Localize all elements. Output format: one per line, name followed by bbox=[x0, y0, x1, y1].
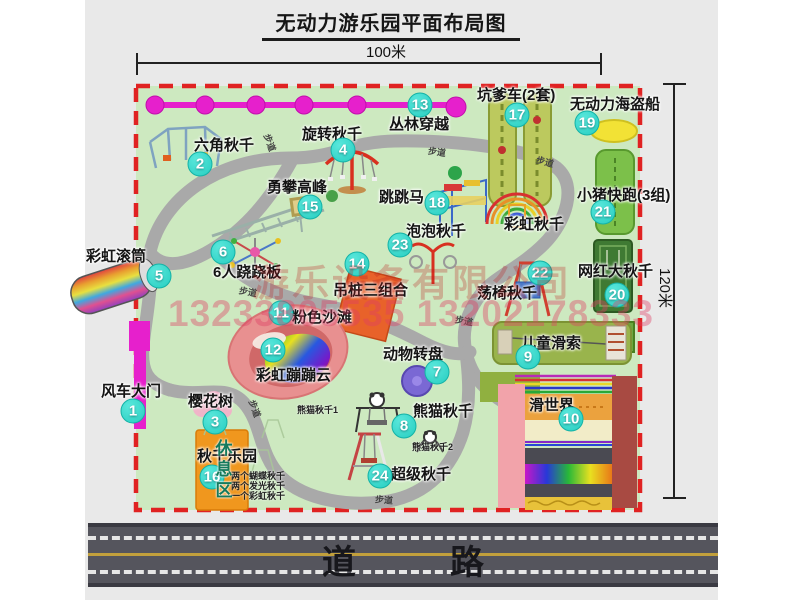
rest-area-label: 休息区 bbox=[196, 431, 248, 509]
attraction-label-20: 网红大秋千 bbox=[578, 260, 653, 281]
attraction-label-23: 泡泡秋千 bbox=[406, 220, 466, 241]
path-label: 步道 bbox=[454, 313, 474, 329]
attraction-number-1: 1 bbox=[121, 399, 146, 424]
attraction-number-7: 7 bbox=[425, 360, 450, 385]
path-label: 步道 bbox=[535, 153, 556, 170]
attraction-label-4: 旋转秋千 bbox=[302, 123, 362, 144]
attraction-number-15: 15 bbox=[298, 195, 323, 220]
attraction-number-10: 10 bbox=[559, 407, 584, 432]
attraction-number-14: 14 bbox=[345, 252, 370, 277]
path-label: 步道 bbox=[246, 398, 264, 419]
attraction-number-19: 19 bbox=[575, 111, 600, 136]
attraction-number-8: 8 bbox=[392, 414, 417, 439]
attraction-number-13: 13 bbox=[408, 93, 433, 118]
attraction-number-2: 2 bbox=[188, 152, 213, 177]
attraction-label: 彩虹秋千 bbox=[504, 213, 564, 234]
attraction-label-21: 小猪快跑(3组) bbox=[577, 184, 670, 205]
attraction-number-24: 24 bbox=[368, 464, 393, 489]
attraction-number-20: 20 bbox=[605, 283, 630, 308]
attraction-number-21: 21 bbox=[591, 200, 616, 225]
attraction-number-12: 12 bbox=[261, 338, 286, 363]
attraction-label-3: 樱花树 bbox=[188, 390, 233, 411]
attraction-number-17: 17 bbox=[505, 103, 530, 128]
attraction-label-8: 熊猫秋千 bbox=[413, 400, 473, 421]
attraction-number-22: 22 bbox=[528, 261, 553, 286]
attraction-label-12: 彩虹蹦蹦云 bbox=[256, 364, 331, 385]
sub-label: 熊猫秋千2 bbox=[412, 440, 453, 453]
attraction-label-11: 粉色沙滩 bbox=[292, 306, 352, 327]
path-label: 步道 bbox=[261, 132, 279, 153]
labels-overlay: 风车大门1六角秋千2樱花树3旋转秋千4彩虹滚筒56人跷跷板6动物转盘7熊猫秋千8… bbox=[0, 0, 800, 600]
attraction-number-23: 23 bbox=[388, 233, 413, 258]
attraction-number-18: 18 bbox=[425, 191, 450, 216]
attraction-label-18: 跳跳马 bbox=[379, 186, 424, 207]
attraction-number-5: 5 bbox=[147, 264, 172, 289]
attraction-number-9: 9 bbox=[516, 345, 541, 370]
attraction-number-6: 6 bbox=[211, 240, 236, 265]
attraction-label-24: 超级秋千 bbox=[391, 463, 451, 484]
sub-label: 熊猫秋千1 bbox=[297, 403, 338, 416]
attraction-label-5: 彩虹滚筒 bbox=[86, 245, 146, 266]
attraction-number-11: 11 bbox=[269, 301, 294, 326]
attraction-label-22: 荡椅秋千 bbox=[477, 282, 537, 303]
attraction-label-14: 吊桩三组合 bbox=[333, 279, 408, 300]
park-plan-canvas: 无动力游乐园平面布局图 100米 120米 风车大门1六角秋千2樱花树3旋转秋千… bbox=[0, 0, 800, 600]
path-label: 步道 bbox=[238, 284, 258, 300]
path-label: 步道 bbox=[374, 492, 393, 507]
attraction-number-4: 4 bbox=[331, 138, 356, 163]
path-label: 步道 bbox=[427, 144, 447, 159]
attraction-label-15: 勇攀高峰 bbox=[267, 176, 327, 197]
